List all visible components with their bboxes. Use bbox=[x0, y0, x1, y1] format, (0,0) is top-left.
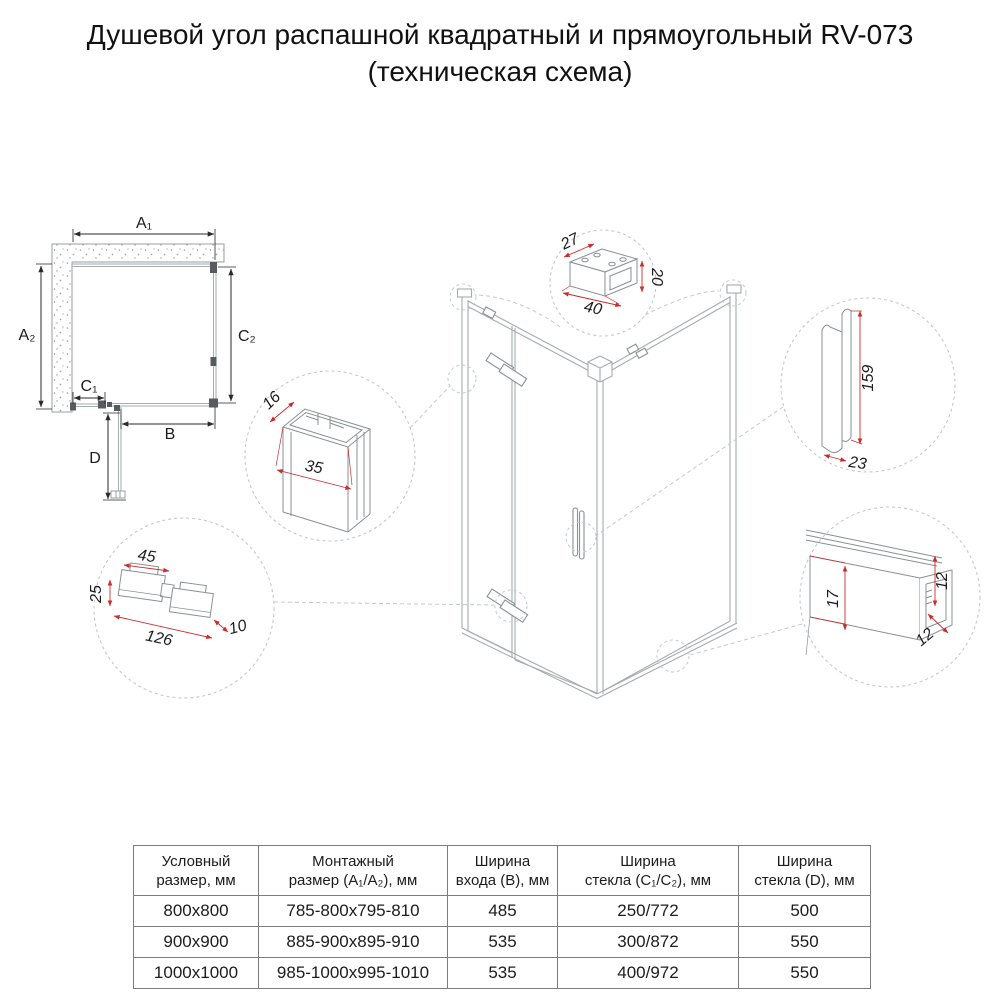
cell-glass-width-c: 250/772 bbox=[558, 896, 739, 927]
cell-mounting-size: 885-900x895-910 bbox=[259, 927, 448, 958]
cell-glass-width-c: 300/872 bbox=[558, 927, 739, 958]
iso-hinges bbox=[486, 353, 528, 622]
plan-label-c2: C₂ bbox=[238, 328, 256, 345]
plan-label-c1: C₁ bbox=[81, 378, 98, 395]
col-header-entry-width: Ширина входа (B), мм bbox=[448, 846, 558, 896]
handle-drawing bbox=[822, 309, 851, 452]
cell-entry-width: 535 bbox=[448, 927, 558, 958]
iso-bottom-rails bbox=[462, 623, 737, 699]
detail-bottom-rail: 17 12 12 bbox=[800, 507, 980, 687]
detail-wall-bracket: 27 20 40 bbox=[550, 230, 665, 336]
cell-glass-width-d: 500 bbox=[739, 896, 871, 927]
size-table: Условный размер, мм Монтажный размер (A₁… bbox=[133, 845, 871, 989]
col-header-nominal-size: Условный размер, мм bbox=[134, 846, 259, 896]
iso-right-post bbox=[730, 292, 736, 624]
iso-bottom-edges bbox=[468, 621, 730, 693]
technical-drawing: A₁ A₂ C₂ C₁ B D bbox=[0, 0, 1000, 835]
cell-entry-width: 485 bbox=[448, 896, 558, 927]
hinge-height-value: 25 bbox=[88, 585, 105, 604]
iso-corner-bracket bbox=[588, 356, 612, 382]
plan-label-a2: A₂ bbox=[19, 327, 36, 344]
rail-inner-height-value: 17 bbox=[825, 589, 842, 608]
plan-label-d: D bbox=[89, 450, 101, 467]
isometric-view bbox=[448, 280, 746, 699]
cell-nominal-size: 1000x1000 bbox=[134, 958, 259, 989]
col-header-mounting-size: Монтажный размер (A₁/A₂), мм bbox=[259, 846, 448, 896]
profile-width-value: 35 bbox=[304, 458, 325, 478]
bracket-height-value: 20 bbox=[648, 267, 665, 286]
cell-nominal-size: 800x800 bbox=[134, 896, 259, 927]
plan-view: A₁ A₂ C₂ C₁ B D bbox=[19, 215, 256, 500]
detail-wall-profile: 16 35 bbox=[245, 371, 415, 541]
col-header-glass-width-c: Ширина стекла (C₁/C₂), мм bbox=[558, 846, 739, 896]
col-header-glass-width-d: Ширина стекла (D), мм bbox=[739, 846, 871, 896]
plan-door-endcap bbox=[111, 491, 125, 498]
detail-handle: 159 23 bbox=[781, 298, 955, 473]
hinge-top-width-value: 45 bbox=[137, 547, 157, 566]
size-table-header: Условный размер, мм Монтажный размер (A₁… bbox=[134, 846, 871, 896]
plan-label-a1: A₁ bbox=[136, 215, 152, 232]
table-row: 900x900 885-900x895-910 535 300/872 550 bbox=[134, 927, 871, 958]
handle-width-value: 23 bbox=[847, 454, 868, 473]
iso-left-post bbox=[462, 296, 468, 631]
cell-glass-width-d: 550 bbox=[739, 927, 871, 958]
technical-scheme-page: Душевой угол распашной квадратный и прям… bbox=[0, 0, 1000, 1000]
handle-height-value: 159 bbox=[860, 365, 877, 392]
cell-mounting-size: 785-800x795-810 bbox=[259, 896, 448, 927]
table-row: 800x800 785-800x795-810 485 250/772 500 bbox=[134, 896, 871, 927]
cell-mounting-size: 985-1000x995-1010 bbox=[259, 958, 448, 989]
cell-entry-width: 535 bbox=[448, 958, 558, 989]
iso-right-post-cap bbox=[727, 285, 741, 293]
detail-hinge: 45 25 126 10 bbox=[88, 518, 274, 698]
plan-label-b: B bbox=[165, 426, 176, 443]
cell-nominal-size: 900x900 bbox=[134, 927, 259, 958]
cell-glass-width-c: 400/972 bbox=[558, 958, 739, 989]
iso-left-post-cap bbox=[458, 289, 472, 297]
bracket-width-value: 40 bbox=[582, 298, 603, 318]
cell-glass-width-d: 550 bbox=[739, 958, 871, 989]
iso-center-post bbox=[597, 373, 603, 694]
rail-height-value: 12 bbox=[934, 572, 951, 590]
table-row: 1000x1000 985-1000x995-1010 535 400/972 … bbox=[134, 958, 871, 989]
plan-walls bbox=[52, 244, 224, 412]
